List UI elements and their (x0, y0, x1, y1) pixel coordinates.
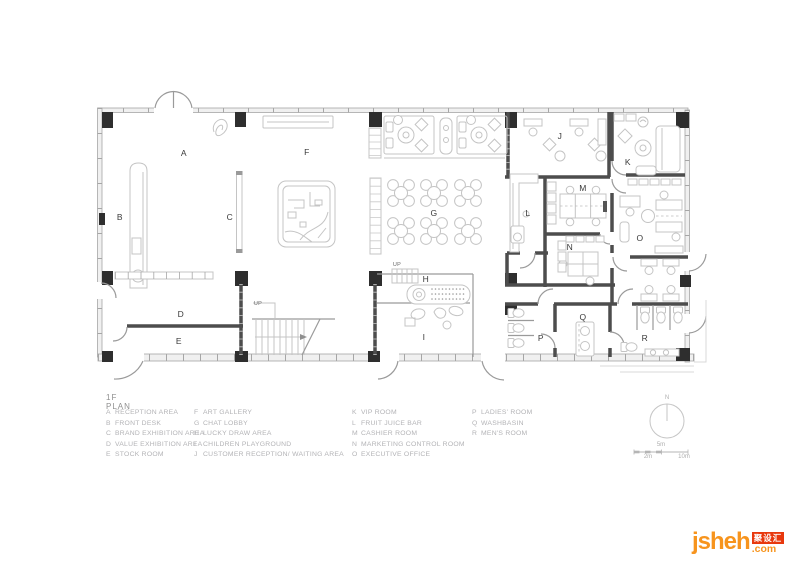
jsheh-watermark: jsheh 聚设汇 .com (692, 529, 784, 555)
legend-column-4: PLADIES' ROOM QWASHBASIN RMEN'S ROOM (472, 408, 533, 440)
legend-item: FART GALLERY (194, 408, 344, 419)
north-compass (650, 404, 684, 438)
legend-item: NMARKETING CONTROL ROOM (352, 440, 465, 451)
room-label-cashier: M (579, 183, 587, 193)
legend-column-3: KVIP ROOM LFRUIT JUICE BAR MCASHIER ROOM… (352, 408, 465, 461)
room-label-front-desk: B (117, 212, 123, 222)
room-label-juice-bar: L (525, 208, 530, 218)
room-label-value-exhibition: D (178, 309, 185, 319)
room-label-washbasin: Q (579, 312, 586, 322)
floor-plan-drawing (0, 0, 800, 565)
scale-right-label: 10m (678, 454, 690, 460)
legend-item: HLUCKY DRAW AREA (194, 429, 344, 440)
stairs-up-label: UP (254, 301, 262, 307)
legend-item: ICHILDREN PLAYGROUND (194, 440, 344, 451)
floor-plan-sheet: A B C D E F G H I J K L M N O P Q R UP U… (0, 0, 800, 565)
room-label-ladies-room: P (538, 333, 544, 343)
room-label-children-playground: I (423, 332, 426, 342)
room-label-reception: A (181, 148, 187, 158)
legend-item: CBRAND EXHIBITION AREA (106, 429, 204, 440)
legend-column-1: ARECEPTION AREA BFRONT DESK CBRAND EXHIB… (106, 408, 204, 461)
legend-item: ESTOCK ROOM (106, 450, 204, 461)
legend-item: JCUSTOMER RECEPTION/ WAITING AREA (194, 450, 344, 461)
room-label-executive-office: O (636, 233, 643, 243)
room-label-art-gallery: F (304, 147, 310, 157)
legend-column-2: FART GALLERY GCHAT LOBBY HLUCKY DRAW ARE… (194, 408, 344, 461)
watermark-suffix-text: .com (752, 544, 785, 555)
compass-north-label: N (665, 395, 669, 401)
legend-item: PLADIES' ROOM (472, 408, 533, 419)
scale-mid-label: 5m (657, 442, 665, 448)
legend-item: GCHAT LOBBY (194, 419, 344, 430)
stairs (252, 303, 335, 355)
room-label-marketing-control: N (567, 242, 574, 252)
scale-left-label: 2m (644, 454, 652, 460)
room-label-mens-room: R (642, 333, 649, 343)
watermark-brand-text: jsheh (692, 529, 750, 555)
steps-up-label: UP (393, 262, 401, 268)
legend-item: OEXECUTIVE OFFICE (352, 450, 465, 461)
room-label-brand-exhibition: C (227, 212, 234, 222)
room-label-vip-room: K (625, 157, 631, 167)
room-label-stock-room: E (176, 336, 182, 346)
room-label-lucky-draw: H (423, 274, 430, 284)
legend-item: RMEN'S ROOM (472, 429, 533, 440)
legend-item: LFRUIT JUICE BAR (352, 419, 465, 430)
legend-item: QWASHBASIN (472, 419, 533, 430)
room-label-chat-lobby: G (430, 208, 437, 218)
legend-item: KVIP ROOM (352, 408, 465, 419)
legend-item: ARECEPTION AREA (106, 408, 204, 419)
room-label-customer-reception: J (558, 131, 563, 141)
legend-item: DVALUE EXHIBITION AREA (106, 440, 204, 451)
legend-item: BFRONT DESK (106, 419, 204, 430)
legend-item: MCASHIER ROOM (352, 429, 465, 440)
